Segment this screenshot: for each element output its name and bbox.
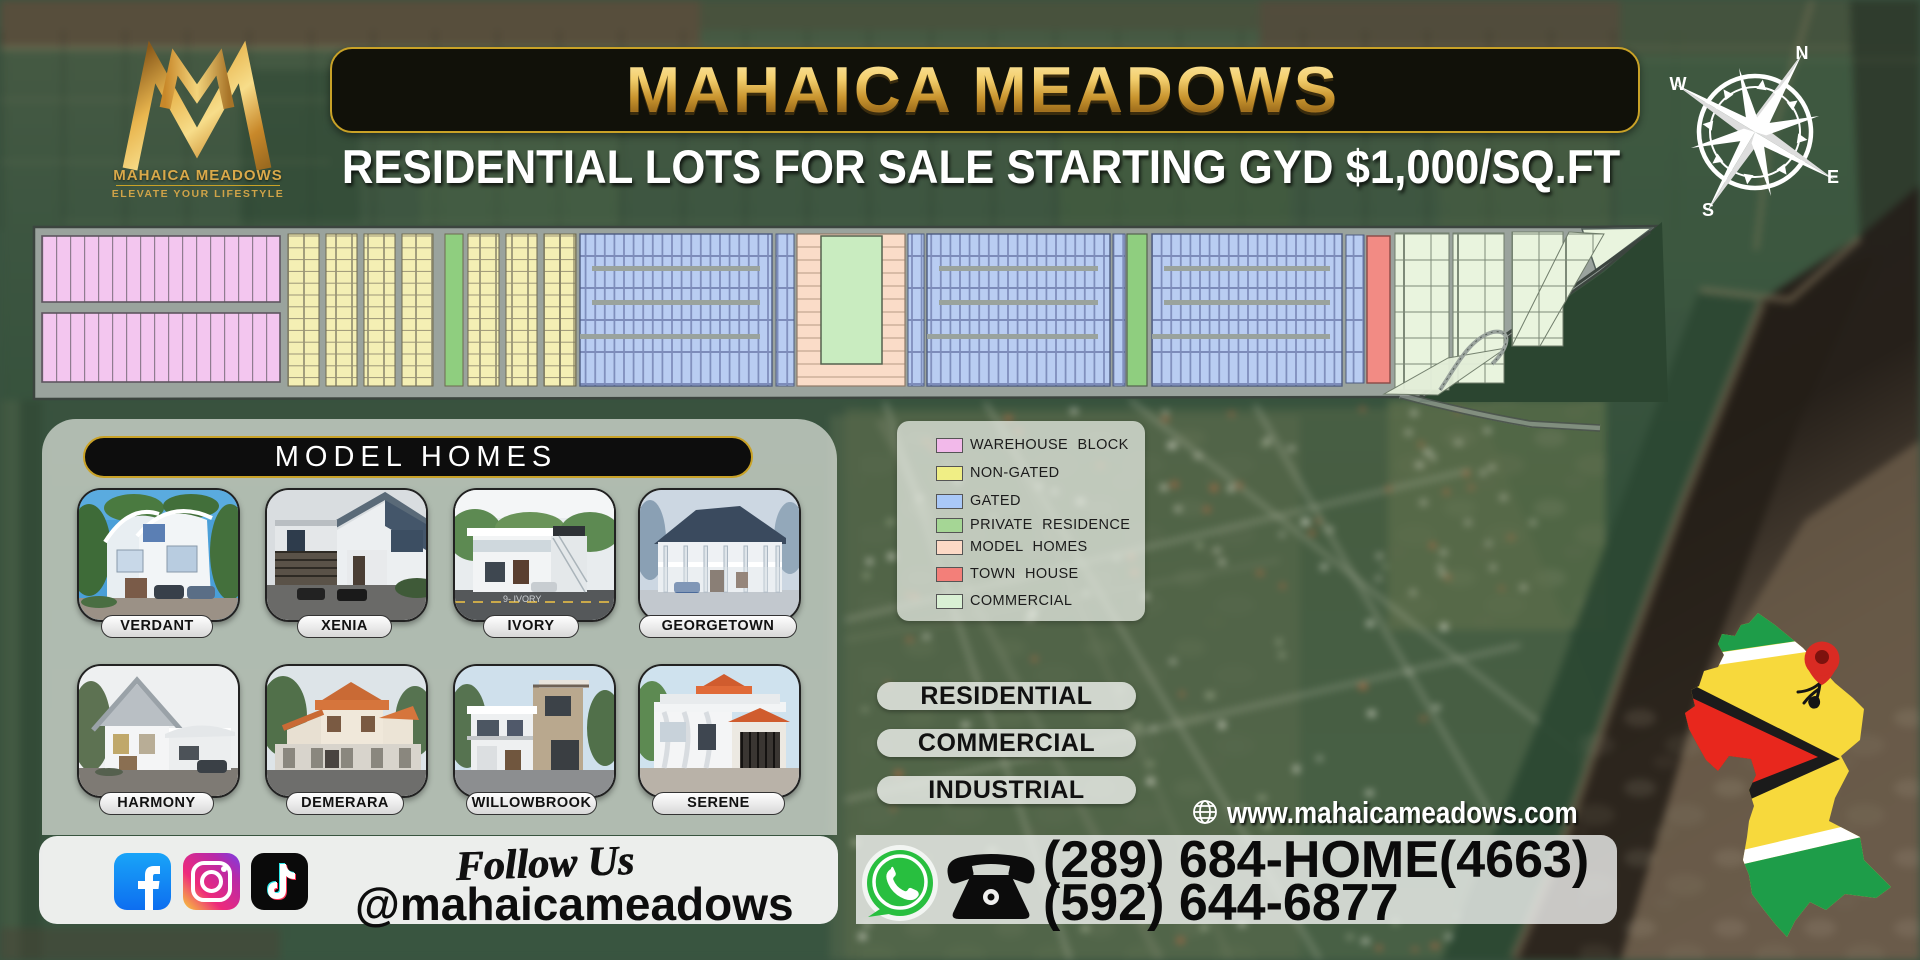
- svg-text:9- IVORY: 9- IVORY: [503, 594, 541, 604]
- svg-text:W: W: [1670, 74, 1687, 94]
- svg-text:N: N: [1796, 43, 1809, 63]
- svg-text:S: S: [1702, 200, 1714, 220]
- svg-text:E: E: [1827, 167, 1839, 187]
